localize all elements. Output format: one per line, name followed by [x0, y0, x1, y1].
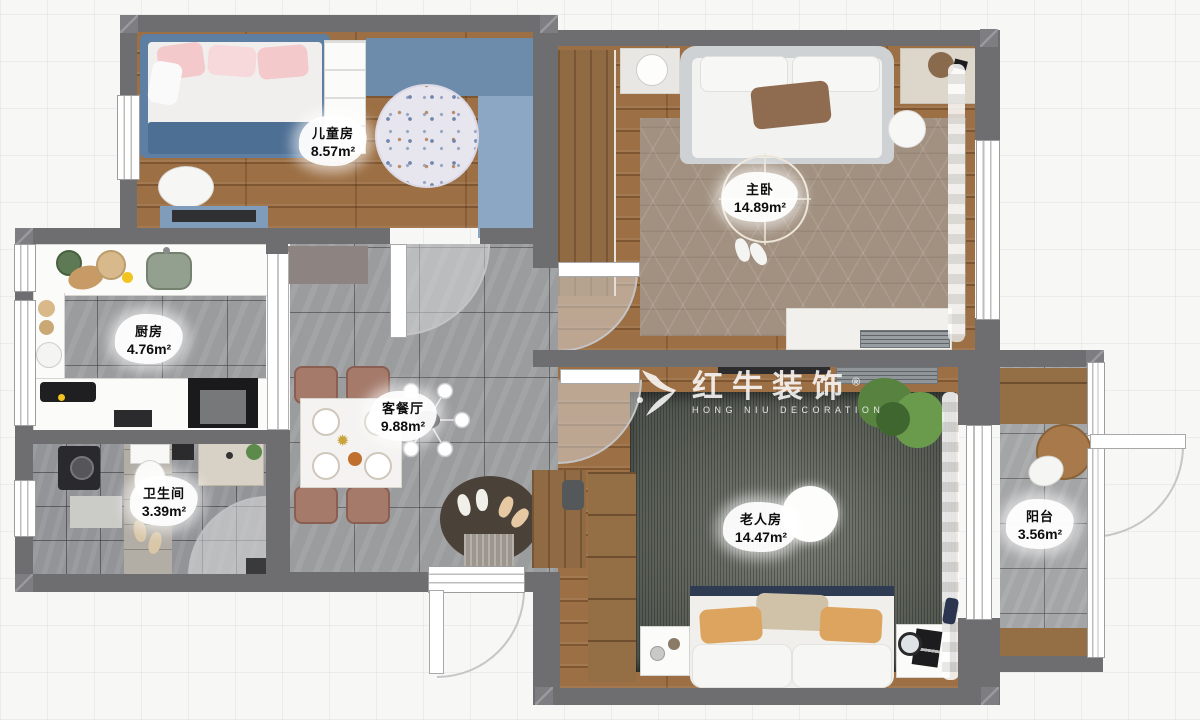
window-icon — [14, 300, 36, 426]
window-icon — [14, 480, 36, 537]
room-area: 4.76m² — [127, 341, 171, 357]
pillow-icon — [257, 44, 310, 80]
bath-shelf — [172, 444, 194, 460]
pillow-icon — [207, 44, 257, 77]
wall-corner — [981, 687, 999, 705]
children-wardrobe — [478, 96, 533, 238]
wall-corner — [535, 687, 553, 705]
wall — [15, 430, 290, 444]
balcony-cabinet-bottom — [1000, 628, 1088, 658]
room-label-elder: 老人房 14.47m² — [723, 502, 799, 552]
bowl-icon — [39, 320, 54, 335]
room-label-master: 主卧 14.89m² — [722, 172, 798, 222]
stove-icon — [40, 382, 96, 402]
door-leaf-icon — [558, 262, 640, 277]
floor-plan: ✹ — [0, 0, 1200, 720]
room-area: 9.88m² — [381, 418, 425, 434]
room-area: 3.56m² — [1018, 526, 1062, 542]
room-name: 卫生间 — [142, 483, 186, 502]
kitchen-sink — [146, 252, 192, 290]
elder-chair — [562, 480, 584, 510]
brand-name: 红牛装饰® — [692, 371, 884, 404]
room-area: 14.47m² — [735, 529, 787, 545]
curtain-icon — [948, 64, 965, 342]
curtain-icon — [942, 392, 959, 680]
dining-chair — [294, 486, 338, 524]
tv-icon — [172, 210, 256, 222]
bull-logo-icon — [628, 366, 682, 420]
door-arc-icon — [437, 590, 525, 678]
window-icon — [1087, 362, 1105, 436]
tv-icon — [860, 330, 950, 348]
duvet-icon — [692, 644, 792, 688]
oven-window — [200, 390, 246, 424]
bowl-icon — [38, 300, 55, 317]
pillow-icon — [819, 606, 883, 643]
wall — [480, 228, 533, 244]
wall — [958, 367, 1000, 425]
room-name: 儿童房 — [311, 123, 355, 142]
plate-icon — [312, 452, 340, 480]
plant-icon — [246, 444, 262, 460]
pillow-icon — [750, 80, 832, 130]
room-area: 14.89m² — [734, 199, 786, 215]
door-leaf-icon — [429, 590, 444, 674]
duvet-icon — [792, 644, 892, 688]
wall — [280, 572, 428, 592]
nightstand-items — [650, 646, 665, 661]
doormat-gray — [464, 534, 514, 566]
wall-corner — [15, 574, 33, 592]
shower-door-pivot — [246, 558, 268, 574]
window-icon — [966, 425, 992, 620]
brand-watermark: 红牛装饰® HONG NIU DECORATION — [628, 366, 884, 420]
room-name: 厨房 — [127, 321, 171, 340]
table-bowl — [348, 452, 362, 466]
wall-corner — [980, 29, 998, 47]
wall — [15, 228, 390, 244]
side-table — [888, 110, 926, 148]
room-name: 客餐厅 — [381, 398, 425, 417]
room-name: 老人房 — [735, 509, 787, 528]
wall — [958, 618, 1000, 688]
children-cabinet-top — [366, 38, 533, 96]
plate-icon — [312, 408, 340, 436]
wall — [266, 430, 290, 592]
children-bed-blanket — [148, 122, 322, 154]
wall — [15, 574, 294, 592]
wall — [533, 688, 1000, 705]
room-area: 8.57m² — [311, 143, 355, 159]
lamp-icon — [636, 54, 668, 86]
room-area: 3.39m² — [142, 503, 186, 519]
window-icon — [14, 244, 36, 292]
nightstand-items — [668, 638, 680, 650]
bath-mat — [70, 496, 122, 528]
bowl-icon — [36, 342, 62, 368]
washer-door-icon — [70, 456, 94, 480]
children-stool — [158, 166, 214, 208]
wall — [533, 572, 560, 705]
pillow-icon — [699, 606, 763, 644]
wall — [266, 244, 288, 254]
room-name: 主卧 — [734, 179, 786, 198]
registered-mark: ® — [852, 376, 860, 388]
wall — [975, 318, 1000, 350]
dining-chair — [346, 486, 390, 524]
wall — [533, 30, 1000, 46]
elder-wardrobe — [588, 472, 636, 682]
room-name: 阳台 — [1018, 506, 1062, 525]
faucet-icon — [226, 452, 233, 459]
window-icon — [117, 95, 140, 180]
wall — [988, 656, 1103, 672]
wall — [533, 350, 1103, 367]
wall — [120, 178, 137, 233]
wall — [15, 535, 33, 574]
light-icon — [58, 394, 65, 401]
light-icon — [122, 272, 133, 283]
kitchen-sliding-door — [267, 252, 289, 430]
balcony-cabinet-top — [1000, 368, 1088, 424]
brand-text: 红牛装饰® HONG NIU DECORATION — [692, 371, 884, 416]
entry-door-frame — [428, 566, 525, 593]
wall — [533, 15, 558, 268]
master-wardrobe — [558, 50, 616, 296]
pillow-icon — [755, 593, 828, 631]
wall — [120, 15, 558, 32]
kitchen-appliance — [114, 410, 152, 427]
faucet-icon — [163, 247, 170, 254]
door-leaf-icon — [1090, 434, 1186, 449]
window-icon — [976, 140, 1000, 320]
children-round-rug — [375, 84, 479, 188]
door-leaf-icon — [390, 244, 407, 338]
window-icon — [1087, 448, 1105, 658]
mirror-icon — [898, 632, 922, 656]
wall-corner — [540, 15, 558, 33]
entry-mat — [288, 246, 368, 284]
table-centerpiece: ✹ — [336, 434, 352, 450]
wall-corner — [120, 15, 138, 33]
brand-subtitle: HONG NIU DECORATION — [692, 405, 884, 415]
elder-nightstand — [640, 626, 690, 676]
